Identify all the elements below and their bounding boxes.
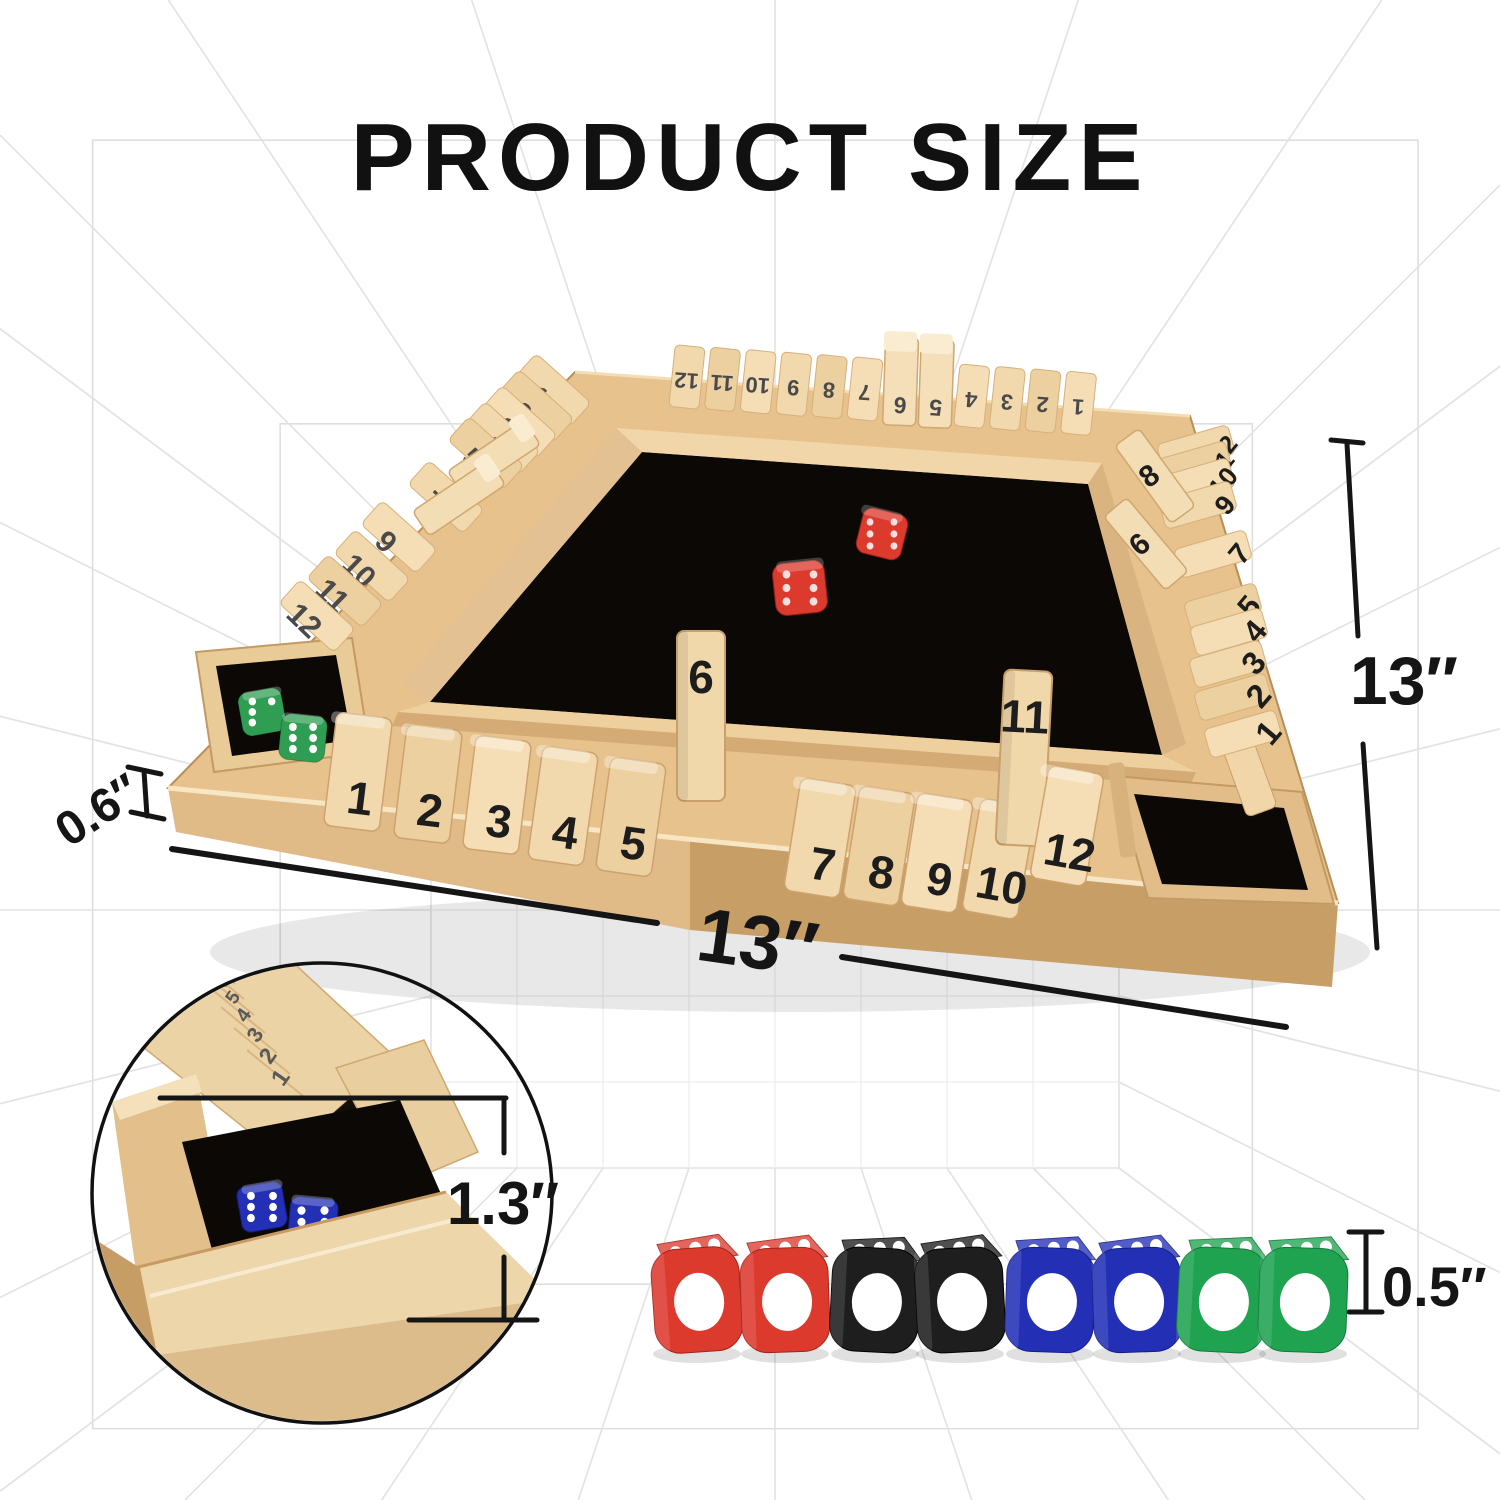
thickness-dim-bottom-tick bbox=[131, 812, 164, 819]
svg-text:5: 5 bbox=[928, 394, 943, 421]
svg-text:7: 7 bbox=[857, 380, 871, 406]
svg-text:11: 11 bbox=[999, 689, 1050, 743]
page-title: PRODUCT SIZE bbox=[351, 104, 1150, 211]
depth-dimension-label: 13″ bbox=[1350, 643, 1458, 719]
svg-text:12: 12 bbox=[673, 367, 699, 394]
row-die-4-black bbox=[913, 1234, 1007, 1363]
tile-far-8: 8 bbox=[811, 354, 847, 419]
die bbox=[237, 686, 288, 738]
row-die-6-blue bbox=[1091, 1235, 1183, 1363]
rail-height-dimension-label: 1.3″ bbox=[447, 1170, 559, 1237]
svg-text:1: 1 bbox=[1071, 394, 1085, 420]
depth-dim-line-lower bbox=[1363, 744, 1377, 948]
svg-text:9: 9 bbox=[786, 375, 800, 401]
red-die-1 bbox=[771, 557, 828, 617]
svg-text:11: 11 bbox=[710, 370, 735, 397]
tile-far-6: 6 bbox=[883, 331, 919, 426]
dice-row bbox=[649, 1233, 1350, 1363]
svg-text:10: 10 bbox=[972, 855, 1031, 915]
die-size-dimension-label: 0.5″ bbox=[1382, 1255, 1487, 1318]
tile-far-4: 4 bbox=[954, 364, 990, 429]
svg-text:2: 2 bbox=[1035, 392, 1049, 418]
inset-blue-die-1 bbox=[235, 1179, 288, 1234]
row-die-5-blue bbox=[1004, 1235, 1096, 1363]
width-dimension-label: 13″ bbox=[692, 892, 824, 993]
scene-canvas: PRODUCT SIZE 121110987654321123457910111… bbox=[0, 0, 1500, 1500]
svg-text:10: 10 bbox=[745, 372, 771, 399]
row-die-7-green bbox=[1175, 1234, 1269, 1363]
svg-text:3: 3 bbox=[1000, 389, 1014, 415]
tile-far-10: 10 bbox=[740, 349, 776, 414]
row-die-2-red bbox=[739, 1235, 831, 1363]
row-die-1-red bbox=[649, 1233, 745, 1363]
svg-text:12: 12 bbox=[1040, 822, 1099, 882]
tile-far-11: 11 bbox=[704, 347, 740, 412]
tile-far-2: 2 bbox=[1025, 369, 1061, 434]
tile-far-1: 1 bbox=[1060, 371, 1096, 436]
row-die-8-green bbox=[1257, 1235, 1349, 1363]
tile-far-9: 9 bbox=[776, 352, 812, 417]
row-die-3-black bbox=[828, 1234, 922, 1363]
tile-far-5: 5 bbox=[918, 333, 954, 428]
die bbox=[278, 712, 329, 763]
thickness-dim-line bbox=[144, 771, 147, 816]
depth-dim-line-upper bbox=[1347, 444, 1358, 636]
svg-text:6: 6 bbox=[688, 651, 714, 703]
tile-far-12: 12 bbox=[669, 345, 705, 410]
tile-far-7: 7 bbox=[847, 357, 883, 422]
tile-far-3: 3 bbox=[989, 366, 1025, 431]
svg-text:8: 8 bbox=[822, 377, 836, 403]
svg-text:6: 6 bbox=[893, 392, 908, 419]
tile-front-6: 6 bbox=[677, 631, 725, 801]
product-size-figure: PRODUCT SIZE 121110987654321123457910111… bbox=[0, 0, 1500, 1500]
